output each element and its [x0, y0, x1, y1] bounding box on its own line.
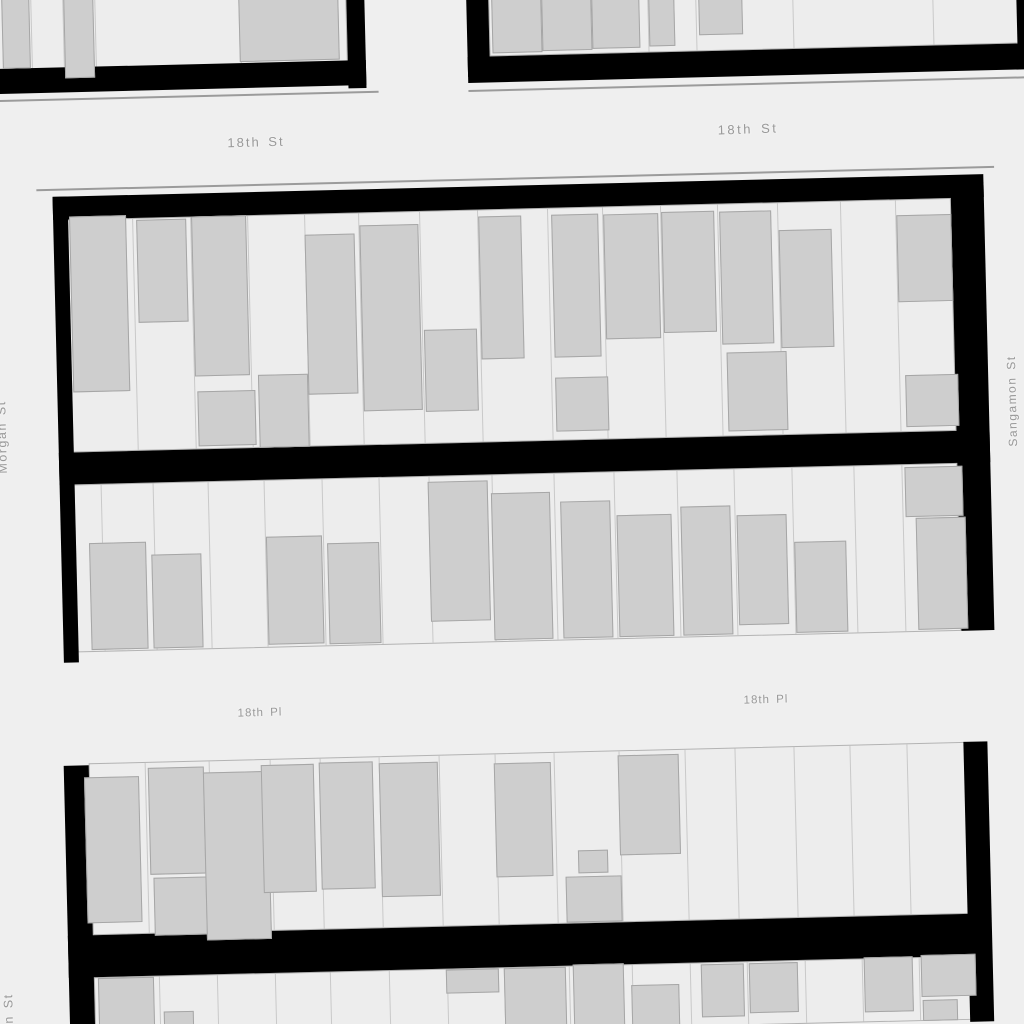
building-footprint [719, 210, 774, 344]
building-footprint [98, 977, 156, 1024]
street-band [345, 0, 367, 88]
street-label: 18th Pl [237, 706, 282, 719]
parcel-divider [159, 977, 162, 1024]
building-footprint [478, 215, 524, 359]
building-footprint [1, 0, 31, 69]
building-footprint [540, 0, 593, 51]
building-footprint [794, 541, 848, 633]
building-footprint [258, 374, 310, 448]
building-footprint [618, 754, 681, 855]
building-footprint [359, 224, 423, 411]
building-footprint [191, 215, 250, 376]
building-footprint [63, 0, 96, 78]
building-footprint [661, 211, 717, 333]
building-footprint [446, 968, 500, 993]
building-footprint [916, 517, 969, 630]
parcel-divider [553, 474, 558, 640]
building-footprint [197, 390, 256, 446]
street-label: 18th St [227, 134, 285, 150]
building-footprint [504, 967, 568, 1024]
street-label: Morgan St [0, 400, 10, 473]
building-footprint [238, 0, 340, 62]
building-footprint [164, 1011, 195, 1024]
street-label: 18th Pl [743, 693, 788, 706]
building-footprint [319, 761, 376, 889]
parcel-divider [569, 967, 572, 1024]
building-footprint [573, 963, 626, 1024]
building-footprint [578, 850, 609, 874]
building-footprint [148, 766, 207, 874]
parcel-divider [840, 202, 847, 433]
parcel-divider [931, 0, 935, 45]
building-footprint [151, 553, 203, 648]
building-footprint [494, 762, 554, 877]
building-footprint [680, 505, 733, 635]
building-footprint [727, 351, 789, 431]
building-footprint [921, 954, 977, 997]
building-footprint [779, 229, 835, 348]
parcel-divider [275, 974, 278, 1024]
map-viewport: 18th St18th St18th Pl18th PlMorgan StMor… [0, 0, 1024, 1024]
building-footprint [896, 214, 953, 302]
parcel-divider [734, 749, 739, 919]
parcel-divider [330, 972, 333, 1024]
building-footprint [69, 215, 130, 392]
building-footprint [491, 492, 554, 640]
building-footprint [490, 0, 543, 53]
building-footprint [864, 956, 914, 1012]
building-footprint [737, 514, 790, 625]
building-footprint [266, 535, 325, 644]
building-footprint [551, 214, 601, 358]
street-label: Sangamon St [1004, 355, 1020, 447]
parcel-divider [684, 750, 689, 920]
building-footprint [905, 374, 959, 427]
street-casing-line [0, 91, 379, 104]
building-footprint [749, 962, 799, 1013]
building-footprint [631, 984, 680, 1024]
building-footprint [153, 876, 207, 935]
building-footprint [136, 219, 189, 323]
parcel-divider [389, 971, 392, 1024]
building-footprint [379, 762, 441, 897]
building-footprint [647, 0, 675, 47]
building-footprint [923, 999, 959, 1021]
building-footprint [84, 776, 143, 923]
parcel-divider [805, 961, 808, 1023]
parcel-divider [793, 747, 798, 917]
building-footprint [590, 0, 640, 49]
building-footprint [566, 875, 623, 922]
building-footprint [616, 514, 674, 637]
building-footprint [327, 542, 381, 644]
parcel-divider [853, 466, 858, 632]
building-footprint [305, 234, 359, 395]
building-footprint [560, 500, 613, 638]
parcel-divider [217, 975, 220, 1024]
building-footprint [89, 542, 149, 650]
parcel-divider [791, 0, 795, 48]
street-label: 18th St [717, 120, 778, 137]
building-footprint [603, 213, 661, 339]
building-footprint [904, 466, 963, 517]
parcel-divider [690, 964, 693, 1024]
building-footprint [261, 764, 317, 893]
street-label: Morgan St [1, 993, 17, 1024]
building-footprint [428, 480, 491, 621]
building-footprint [697, 0, 743, 35]
map-canvas[interactable]: 18th St18th St18th Pl18th PlMorgan StMor… [0, 0, 1024, 1024]
building-footprint [701, 963, 745, 1017]
parcel-divider [906, 744, 911, 914]
building-footprint [424, 329, 479, 412]
parcel-divider [849, 746, 854, 916]
parcel-divider [208, 482, 213, 648]
building-footprint [555, 376, 609, 431]
parcel-divider [694, 0, 698, 50]
parcel-divider [554, 753, 559, 923]
